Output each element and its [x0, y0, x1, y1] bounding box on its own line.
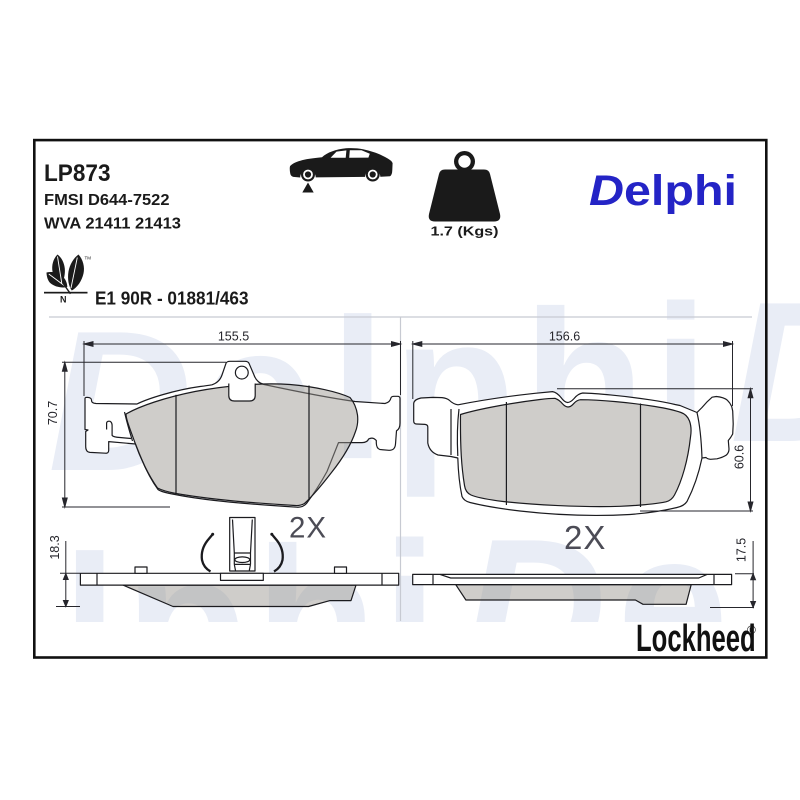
- svg-text:2X: 2X: [289, 512, 327, 545]
- svg-text:®: ®: [747, 623, 756, 637]
- svg-text:17.5: 17.5: [735, 538, 749, 562]
- svg-text:E1 90R - 01881/463: E1 90R - 01881/463: [95, 288, 249, 309]
- svg-text:155.5: 155.5: [218, 330, 249, 344]
- svg-text:60.6: 60.6: [733, 445, 747, 469]
- svg-text:TM: TM: [85, 256, 92, 261]
- svg-text:1.7 (Kgs): 1.7 (Kgs): [431, 225, 499, 239]
- svg-text:70.7: 70.7: [46, 401, 60, 425]
- svg-text:2X: 2X: [564, 519, 606, 556]
- svg-text:Lockheed: Lockheed: [636, 617, 756, 659]
- svg-text:p: p: [125, 512, 247, 735]
- svg-text:FMSI D644-7522: FMSI D644-7522: [44, 192, 170, 209]
- svg-text:l: l: [330, 278, 386, 501]
- svg-text:Delphi: Delphi: [589, 167, 737, 215]
- svg-text:WVA 21411 21413: WVA 21411 21413: [44, 216, 181, 233]
- svg-text:LP873: LP873: [44, 160, 111, 187]
- svg-text:i: i: [382, 501, 438, 724]
- svg-text:N: N: [60, 295, 67, 305]
- svg-text:156.6: 156.6: [549, 330, 580, 344]
- svg-text:l: l: [62, 515, 118, 738]
- svg-text:18.3: 18.3: [48, 535, 62, 559]
